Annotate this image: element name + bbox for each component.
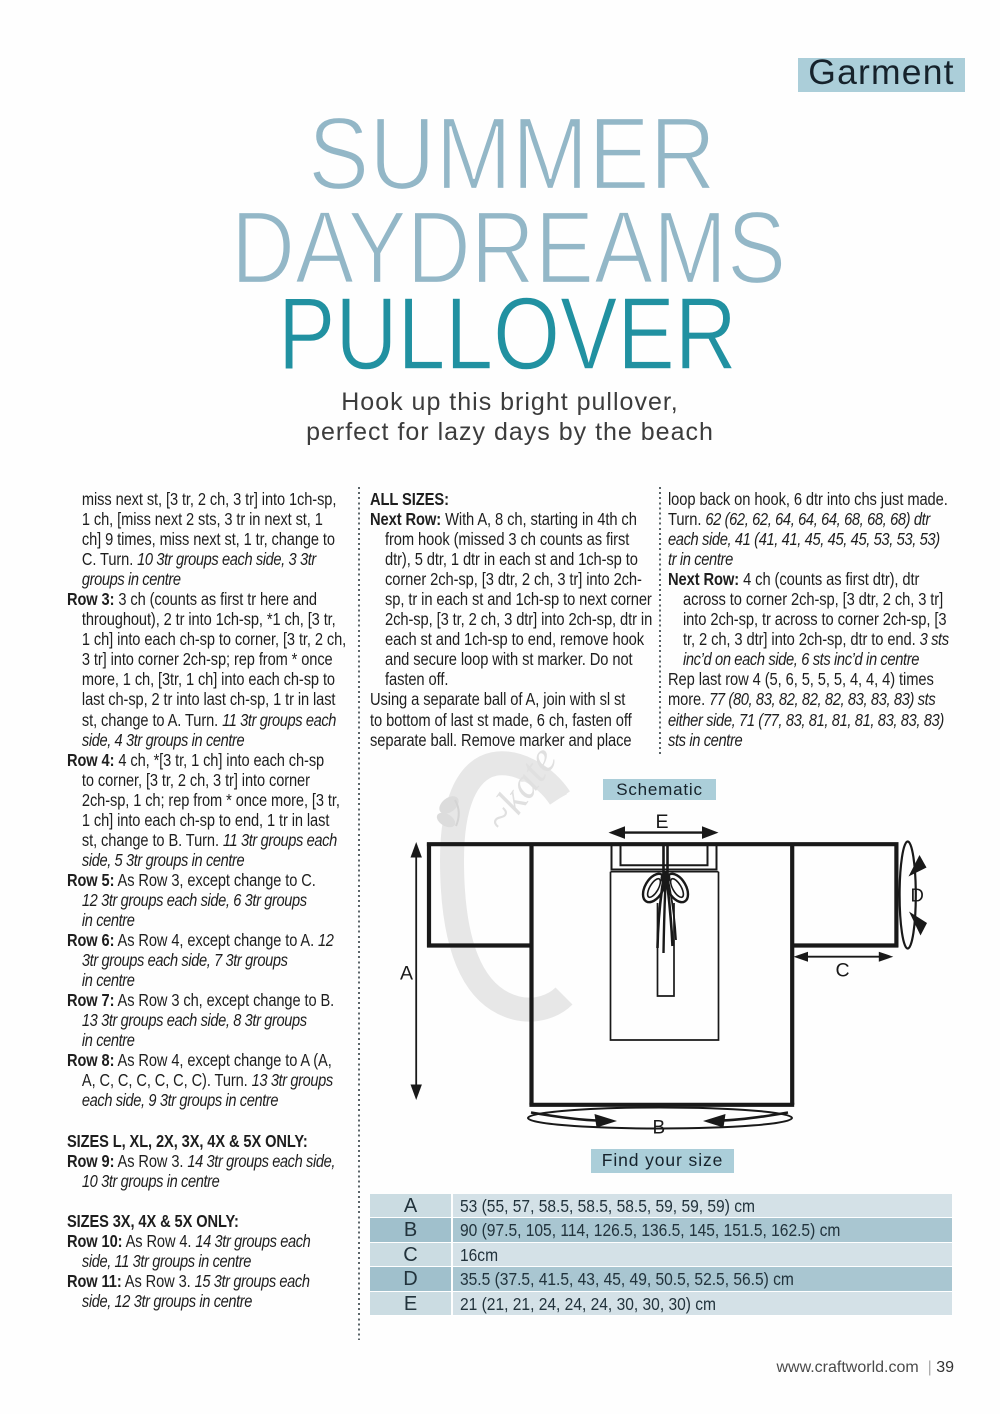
svg-text:B: B bbox=[653, 1118, 666, 1139]
svg-text:C: C bbox=[836, 960, 850, 982]
svg-text:D: D bbox=[911, 885, 924, 906]
svg-text:E: E bbox=[656, 811, 669, 833]
svg-text:A: A bbox=[400, 963, 413, 985]
